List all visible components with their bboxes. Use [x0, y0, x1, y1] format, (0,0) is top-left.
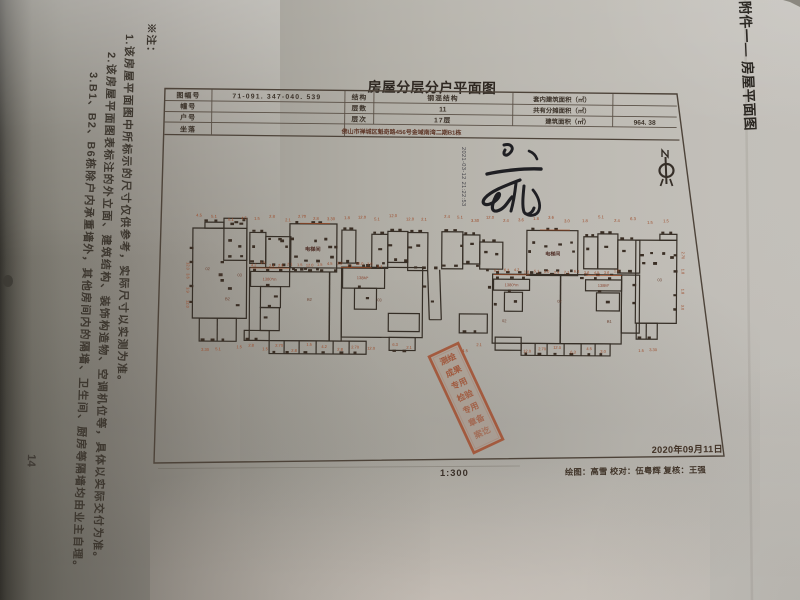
svg-text:3.30: 3.30: [201, 347, 210, 352]
svg-text:5.1: 5.1: [457, 215, 463, 220]
svg-text:4.5: 4.5: [327, 261, 332, 266]
svg-text:1.5: 1.5: [297, 262, 302, 267]
svg-text:层次: 层次: [351, 115, 367, 124]
svg-text:11: 11: [439, 106, 446, 113]
svg-text:2.8: 2.8: [269, 214, 275, 219]
svg-text:2.8: 2.8: [313, 216, 319, 221]
svg-text:71-091. 347-040. 539: 71-091. 347-040. 539: [232, 93, 321, 101]
svg-text:2.1: 2.1: [564, 270, 569, 275]
svg-text:3.6: 3.6: [518, 217, 524, 222]
svg-text:1.5: 1.5: [638, 348, 644, 353]
svg-text:1:300: 1:300: [440, 468, 469, 478]
svg-text:5.1: 5.1: [377, 264, 382, 269]
svg-text:3.6: 3.6: [548, 215, 554, 220]
svg-text:图幅号: 图幅号: [176, 91, 200, 100]
svg-text:3.30: 3.30: [327, 216, 336, 221]
svg-text:4.2: 4.2: [514, 267, 519, 272]
svg-text:3.0: 3.0: [600, 349, 606, 354]
svg-text:4.2: 4.2: [251, 262, 256, 267]
svg-text:B2: B2: [307, 297, 313, 302]
svg-text:3.6: 3.6: [584, 270, 589, 275]
svg-text:2.70: 2.70: [275, 343, 284, 348]
svg-text:结构: 结构: [352, 93, 368, 102]
svg-text:※注：: ※注：: [144, 23, 158, 58]
svg-text:1.5: 1.5: [254, 216, 260, 221]
svg-text:1.8: 1.8: [344, 215, 350, 220]
svg-text:1.8: 1.8: [582, 218, 588, 223]
svg-text:1.8: 1.8: [524, 269, 529, 274]
svg-text:钢混结构: 钢混结构: [426, 93, 458, 102]
svg-text:1.8: 1.8: [680, 289, 685, 294]
svg-text:2020年09月11日: 2020年09月11日: [652, 443, 723, 455]
svg-text:1.5: 1.5: [262, 346, 268, 351]
svg-text:2.8: 2.8: [248, 343, 254, 348]
svg-text:2.1: 2.1: [406, 345, 412, 350]
svg-text:5.1: 5.1: [534, 268, 539, 273]
svg-text:3.0: 3.0: [544, 269, 550, 274]
svg-text:坐落: 坐落: [180, 125, 196, 134]
svg-text:1.8: 1.8: [681, 269, 686, 274]
svg-text:12.0: 12.0: [356, 261, 364, 266]
svg-text:幢号: 幢号: [180, 102, 196, 111]
svg-text:3.9: 3.9: [185, 287, 190, 292]
svg-text:12.0: 12.0: [185, 300, 190, 308]
svg-text:6.3: 6.3: [504, 267, 509, 272]
svg-text:4.5: 4.5: [594, 270, 599, 275]
svg-text:6.3: 6.3: [630, 216, 636, 221]
svg-text:6.3: 6.3: [574, 269, 579, 274]
svg-text:12.0: 12.0: [486, 215, 495, 220]
svg-text:1.5: 1.5: [260, 260, 265, 265]
svg-text:5.1: 5.1: [228, 217, 234, 222]
svg-text:138M*: 138M*: [357, 275, 369, 280]
svg-text:2.70: 2.70: [681, 252, 686, 260]
svg-text:3.0: 3.0: [367, 261, 373, 266]
svg-text:4.5: 4.5: [586, 346, 592, 351]
svg-text:电梯间: 电梯间: [545, 250, 560, 257]
svg-text:2.70: 2.70: [298, 214, 307, 219]
svg-text:3.0: 3.0: [564, 218, 570, 223]
svg-text:3.30: 3.30: [649, 347, 658, 352]
svg-text:1.5: 1.5: [306, 342, 312, 347]
svg-text:1.5: 1.5: [236, 344, 242, 349]
svg-text:6.3: 6.3: [392, 342, 398, 347]
svg-text:电梯间: 电梯间: [305, 245, 321, 253]
svg-text:12.0: 12.0: [389, 213, 398, 218]
svg-text:12.0: 12.0: [358, 215, 367, 220]
svg-text:6.3: 6.3: [570, 349, 576, 354]
svg-text:12.0: 12.0: [367, 346, 376, 351]
svg-text:1.5: 1.5: [317, 262, 322, 267]
svg-text:2.1: 2.1: [285, 217, 291, 222]
svg-text:1.5: 1.5: [663, 218, 669, 223]
svg-text:2.4: 2.4: [269, 263, 275, 268]
svg-text:2.8: 2.8: [278, 263, 283, 268]
svg-text:2.8: 2.8: [337, 347, 343, 352]
svg-text:138M*: 138M*: [598, 283, 610, 288]
svg-text:5.1: 5.1: [494, 268, 499, 273]
svg-text:1.8: 1.8: [533, 216, 539, 221]
svg-text:2.1: 2.1: [287, 262, 292, 267]
svg-text:2.4: 2.4: [614, 218, 620, 223]
svg-text:12.0: 12.0: [523, 348, 532, 353]
svg-text:3.30: 3.30: [471, 218, 480, 223]
svg-text:2.70: 2.70: [351, 344, 360, 349]
svg-text:5.1: 5.1: [374, 216, 380, 221]
svg-text:4.2: 4.2: [321, 344, 327, 349]
svg-text:2.8: 2.8: [291, 348, 297, 353]
svg-text:3.6: 3.6: [186, 273, 191, 278]
svg-text:1.5: 1.5: [614, 268, 619, 273]
svg-text:4.5: 4.5: [196, 213, 202, 218]
svg-text:12.0: 12.0: [406, 216, 415, 221]
svg-text:12.0: 12.0: [553, 345, 562, 350]
svg-text:房屋分层分户平面图: 房屋分层分户平面图: [368, 78, 497, 96]
svg-text:12.0: 12.0: [306, 262, 314, 267]
svg-text:5.1: 5.1: [211, 214, 217, 219]
svg-text:2.4: 2.4: [503, 218, 509, 223]
svg-text:12.0: 12.0: [186, 262, 191, 270]
svg-text:3.0: 3.0: [680, 305, 685, 311]
svg-text:964. 38: 964. 38: [634, 120, 656, 127]
svg-text:14: 14: [25, 454, 37, 468]
svg-text:1.5: 1.5: [647, 220, 653, 225]
svg-text:3.6: 3.6: [604, 270, 609, 275]
svg-text:1380*m: 1380*m: [505, 282, 519, 287]
svg-text:B2: B2: [225, 296, 231, 301]
svg-text:B1: B1: [607, 319, 613, 324]
svg-text:1380*m: 1380*m: [263, 277, 277, 282]
svg-text:层数: 层数: [351, 104, 367, 113]
svg-text:2021-03-12 21:22:53: 2021-03-12 21:22:53: [460, 147, 466, 207]
svg-text:2.4: 2.4: [444, 214, 450, 219]
svg-text:3.0: 3.0: [337, 261, 343, 266]
svg-text:2.4: 2.4: [554, 270, 560, 275]
svg-text:2.1: 2.1: [421, 217, 427, 222]
svg-text:户号: 户号: [180, 113, 196, 122]
svg-text:17层: 17层: [434, 115, 451, 124]
svg-text:5.1: 5.1: [215, 346, 221, 351]
svg-text:2.1: 2.1: [476, 342, 482, 347]
svg-text:4.5: 4.5: [241, 215, 247, 220]
svg-text:5.1: 5.1: [598, 214, 604, 219]
svg-text:2.70: 2.70: [538, 346, 547, 351]
